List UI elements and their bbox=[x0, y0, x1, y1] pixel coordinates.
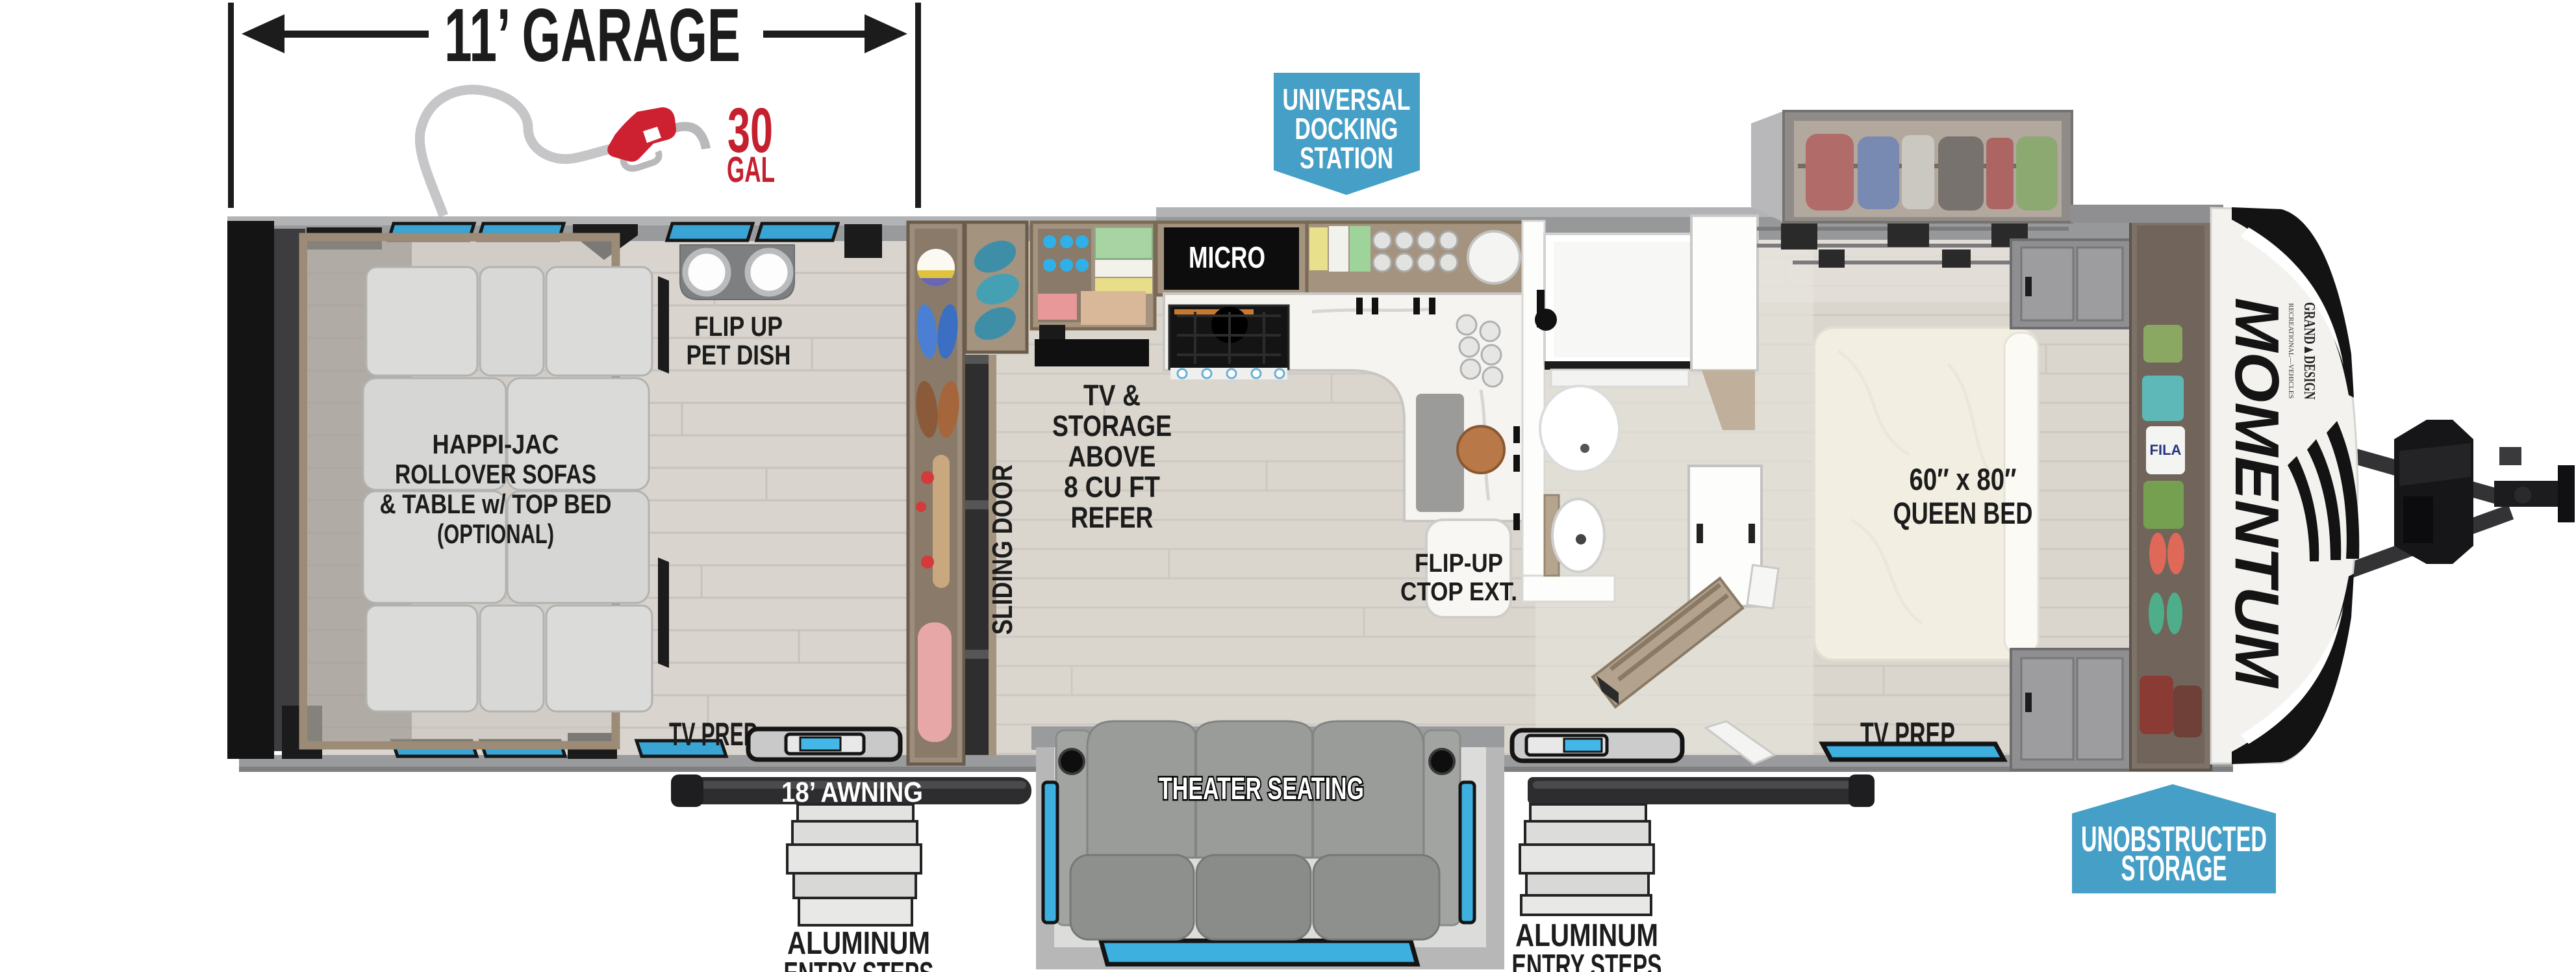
svg-text:GAL: GAL bbox=[727, 149, 775, 190]
svg-text:ENTRY STEPS: ENTRY STEPS bbox=[1512, 949, 1662, 972]
svg-text:RECREATIONAL—VEHICLES: RECREATIONAL—VEHICLES bbox=[2287, 303, 2295, 398]
svg-text:ALUMINUM: ALUMINUM bbox=[787, 926, 930, 961]
svg-text:TV &: TV & bbox=[1083, 379, 1141, 412]
svg-text:ENTRY STEPS: ENTRY STEPS bbox=[784, 956, 934, 972]
svg-text:FLIP UP: FLIP UP bbox=[694, 311, 783, 342]
svg-text:REFER: REFER bbox=[1071, 501, 1154, 534]
svg-text:& TABLE w/ TOP BED: & TABLE w/ TOP BED bbox=[380, 489, 612, 519]
svg-text:THEATER SEATING: THEATER SEATING bbox=[1159, 772, 1364, 806]
svg-text:PET DISH: PET DISH bbox=[687, 340, 791, 371]
svg-text:STATION: STATION bbox=[1300, 141, 1393, 175]
svg-text:GRAND▲DESIGN: GRAND▲DESIGN bbox=[2301, 302, 2317, 400]
svg-text:8 CU FT: 8 CU FT bbox=[1064, 470, 1160, 504]
svg-text:SLIDING DOOR: SLIDING DOOR bbox=[987, 465, 1018, 635]
svg-text:QUEEN BED: QUEEN BED bbox=[1893, 496, 2033, 530]
svg-text:ROLLOVER SOFAS: ROLLOVER SOFAS bbox=[395, 459, 596, 489]
svg-text:MICRO: MICRO bbox=[1189, 240, 1265, 274]
svg-text:ALUMINUM: ALUMINUM bbox=[1515, 918, 1658, 953]
svg-text:ABOVE: ABOVE bbox=[1068, 440, 1156, 473]
svg-text:FILA: FILA bbox=[2150, 442, 2182, 458]
svg-text:HAPPI-JAC: HAPPI-JAC bbox=[433, 429, 559, 459]
svg-text:(OPTIONAL): (OPTIONAL) bbox=[437, 518, 554, 549]
svg-text:CTOP EXT.: CTOP EXT. bbox=[1400, 578, 1517, 606]
svg-text:60″ x 80″: 60″ x 80″ bbox=[1910, 462, 2017, 496]
svg-text:FLIP-UP: FLIP-UP bbox=[1415, 549, 1503, 578]
svg-text:STORAGE: STORAGE bbox=[2121, 848, 2227, 888]
svg-text:STORAGE: STORAGE bbox=[1052, 409, 1172, 442]
svg-text:MOMENTUM: MOMENTUM bbox=[2222, 298, 2292, 689]
svg-text:TV PREP: TV PREP bbox=[669, 716, 757, 752]
svg-text:11’ GARAGE: 11’ GARAGE bbox=[444, 0, 740, 77]
